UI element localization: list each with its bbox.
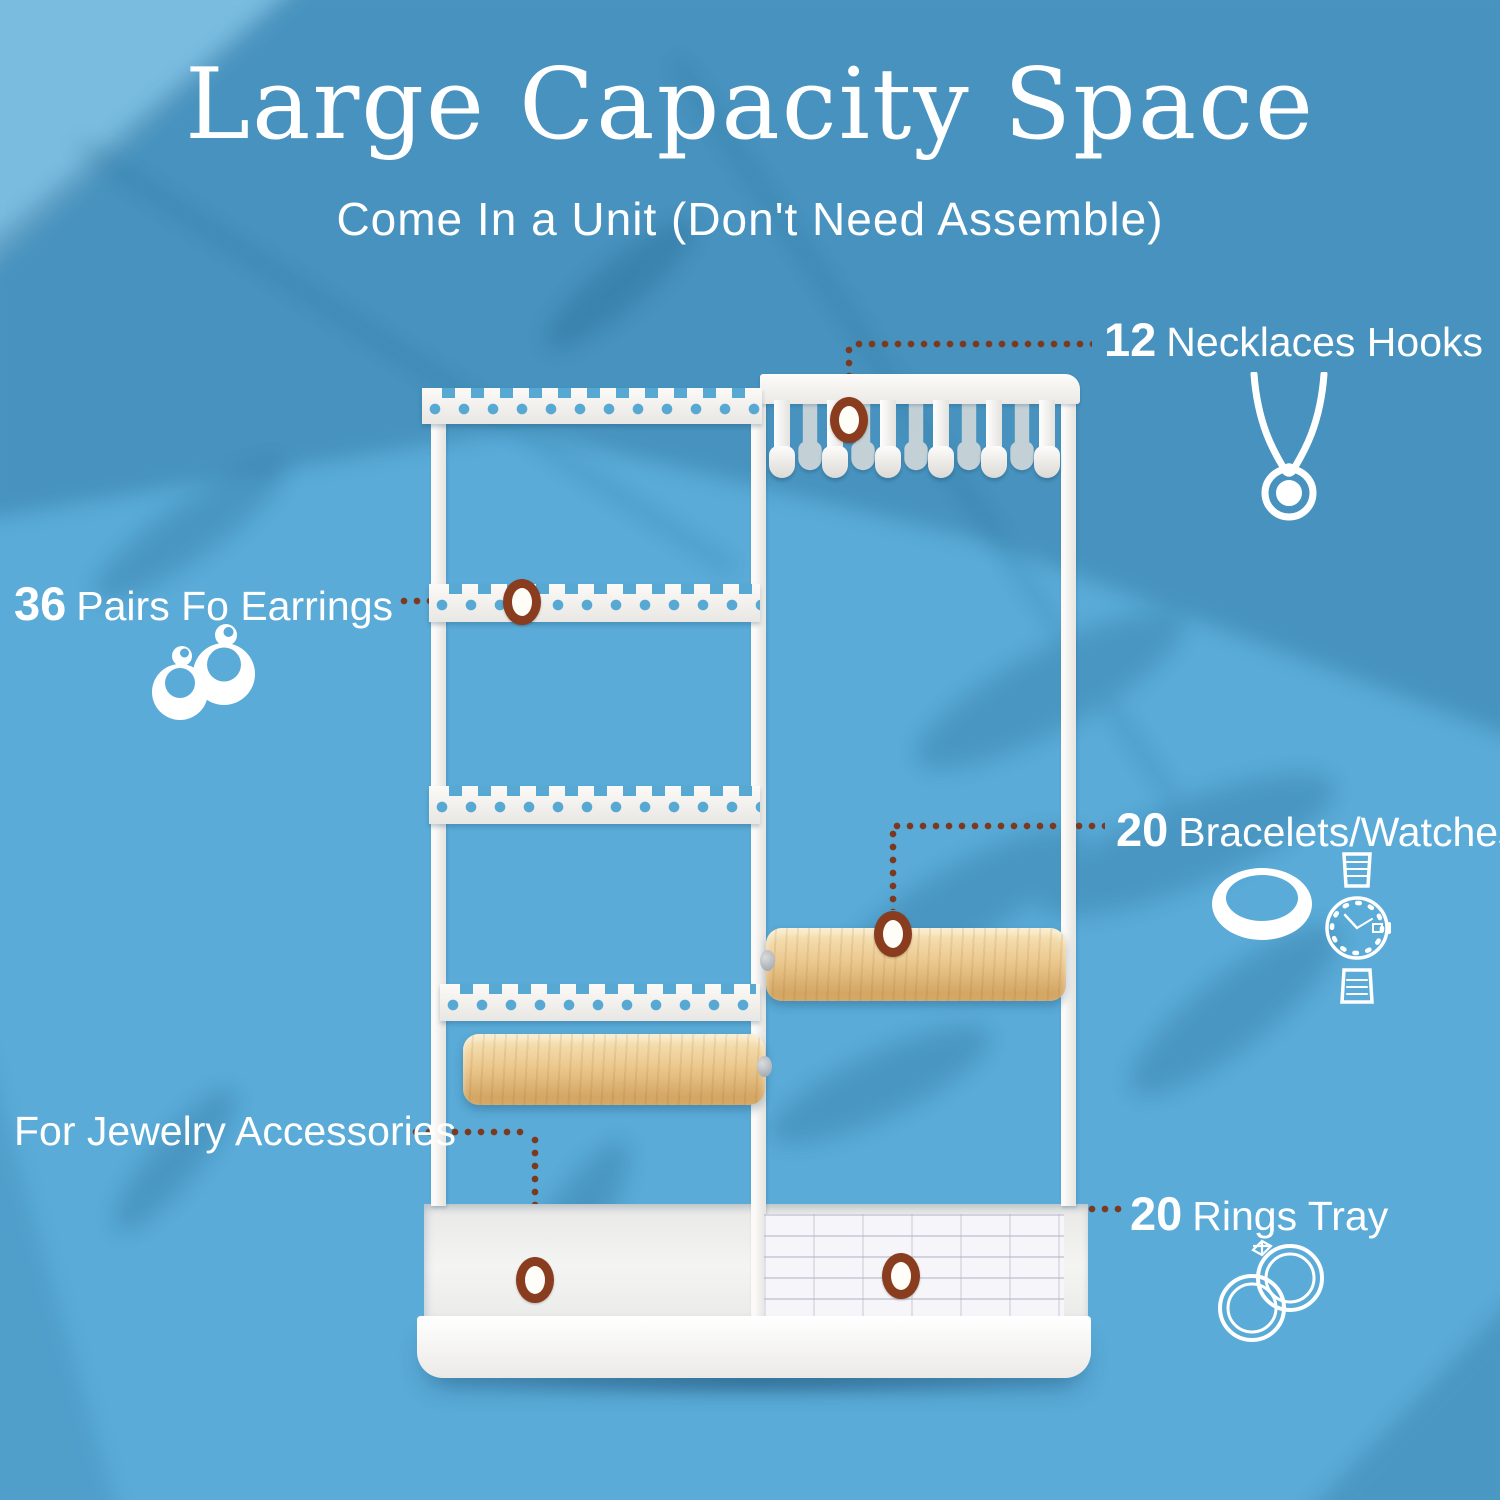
leader-line: [889, 830, 897, 910]
earring-bar-4: [440, 984, 760, 1021]
page-subtitle: Come In a Unit (Don't Need Assemble): [0, 192, 1500, 246]
text-accessories: For Jewelry Accessories: [14, 1108, 456, 1154]
necklace-hook: [957, 400, 980, 472]
earring-bar-2: [429, 584, 760, 622]
text-rings: Rings Tray: [1192, 1193, 1388, 1239]
label-necklaces: 12Necklaces Hooks: [1104, 312, 1483, 367]
watch-icon: [1324, 852, 1392, 1004]
tray-front-face: [417, 1316, 1091, 1378]
necklace-hook: [1034, 400, 1060, 480]
label-rings: 20Rings Tray: [1130, 1186, 1388, 1241]
label-accessories: For Jewelry Accessories: [14, 1108, 456, 1155]
callout-marker-rings: [882, 1253, 920, 1299]
callout-marker-bracelets: [874, 911, 912, 957]
callout-marker-necklaces: [830, 397, 868, 443]
earrings-icon: [148, 622, 258, 726]
bar-screw: [757, 1056, 772, 1077]
rings-icon: [1212, 1238, 1334, 1350]
earring-bar-1: [422, 388, 762, 424]
text-bracelets: Bracelets/Watches: [1178, 809, 1500, 855]
necklace-hook: [769, 400, 795, 480]
earring-bar-3: [429, 786, 760, 824]
count-bracelets: 20: [1116, 803, 1168, 856]
callout-marker-earrings: [503, 579, 541, 625]
necklace-hook: [798, 400, 821, 472]
label-bracelets: 20Bracelets/Watches: [1116, 802, 1500, 857]
bracelet-wood-bar-right: [766, 928, 1066, 1001]
bar-screw: [760, 950, 775, 971]
bangle-icon: [1210, 864, 1314, 944]
stand-right-post: [1061, 400, 1076, 1206]
count-necklaces: 12: [1104, 313, 1156, 366]
product-infographic: Large Capacity Space Come In a Unit (Don…: [0, 0, 1500, 1500]
necklace-icon: [1246, 372, 1332, 524]
necklace-hook: [875, 400, 901, 480]
leader-line: [855, 340, 1092, 348]
necklace-hook: [1010, 400, 1033, 472]
callout-marker-accessories: [516, 1257, 554, 1303]
necklace-hook-shelf: [760, 374, 1080, 404]
count-earrings: 36: [14, 577, 66, 630]
necklace-hook: [904, 400, 927, 472]
page-title: Large Capacity Space: [0, 48, 1500, 162]
text-necklaces: Necklaces Hooks: [1166, 319, 1483, 365]
count-rings: 20: [1130, 1187, 1182, 1240]
necklace-hook: [981, 400, 1007, 480]
bracelet-wood-bar-left: [463, 1034, 765, 1105]
necklace-hook: [928, 400, 954, 480]
stand-middle-post: [751, 396, 766, 1318]
